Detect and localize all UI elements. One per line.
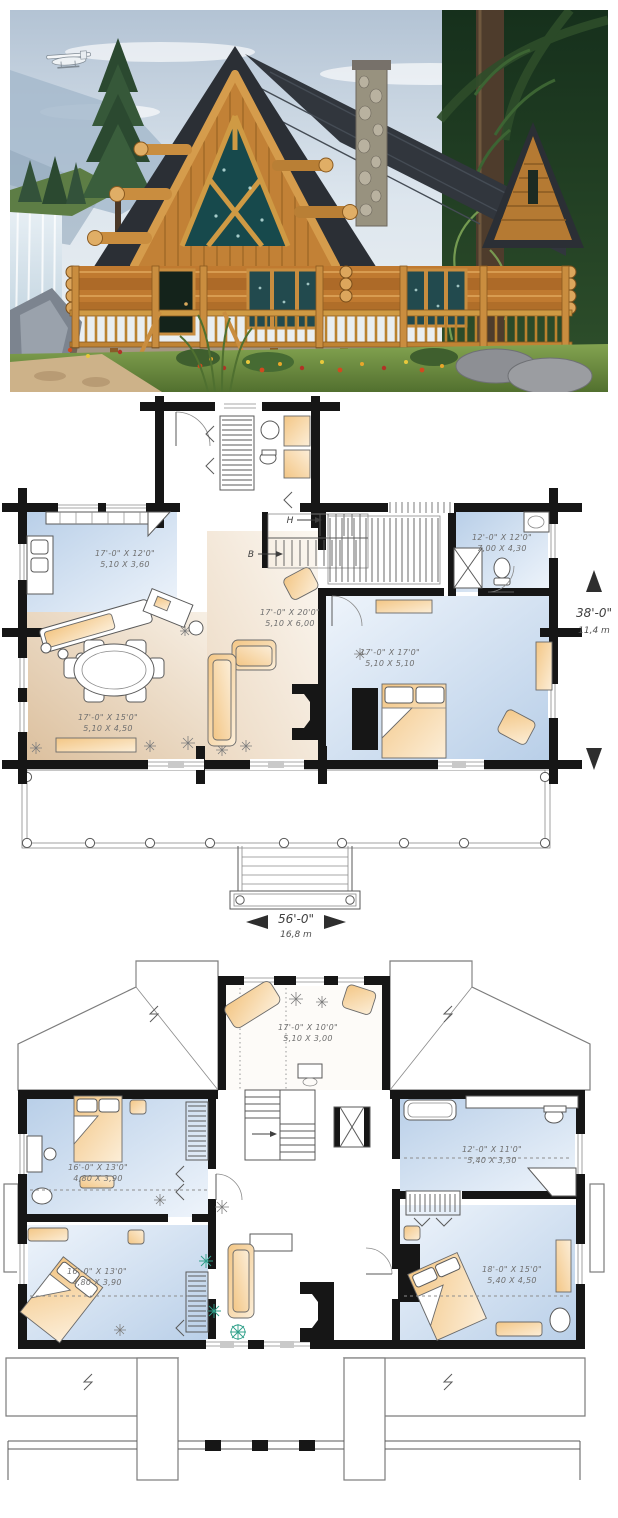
lower-roof-deck [6,1358,585,1480]
deck-pillar-left [137,1358,178,1480]
stone-chimney [352,60,391,226]
sitting-label-imperial: 17'-0" X 10'0" [278,1023,338,1032]
bath-label-imperial: 12'-0" X 12'0" [472,533,532,542]
entry-mudroom [176,412,310,508]
hall-table [250,1234,292,1251]
sideboard [56,738,136,752]
right-dormer [590,1184,604,1272]
depth-metric: 11,4 m [578,626,610,636]
width-imperial: 56'-0" [278,912,314,926]
deck-pillar-right [344,1358,385,1480]
dresser-r [556,1240,571,1292]
sitting-label-metric: 5,10 X 3,00 [283,1034,333,1043]
bedroom-label-metric: 5,10 X 5,10 [365,659,415,668]
dining-label-imperial: 17'-0" X 15'0" [78,713,138,722]
bedroom-r-label-metric: 5,40 X 4,50 [487,1276,537,1285]
front-door [158,270,194,334]
living-label-metric: 5,10 X 6,00 [265,619,315,628]
bedroom-label-imperial: 17'-0" X 17'0" [360,648,420,657]
arrow-down-icon [586,748,602,770]
stair-up-label: H [287,516,294,526]
bedroom-lu-label-metric: 4,80 X 3,90 [73,1174,123,1183]
bedroom-lu-label-imperial: 16'-0" X 13'0" [68,1163,128,1172]
bath-sink [524,512,549,532]
kitchen-label-metric: 5,10 X 3,60 [100,560,150,569]
first-floor-plan: H B [0,396,618,942]
width-dimension: 56'-0" 16,8 m [246,912,346,940]
bath2-label-metric: 5,40 X 3,30 [467,1156,517,1165]
arrow-left-icon [246,915,268,929]
arrow-right-icon [324,915,346,929]
dresser [376,600,432,613]
sitting-table [298,1064,322,1078]
nightstand-lu [130,1100,146,1114]
desk-lu [27,1136,42,1172]
second-floor-svg: 17'-0" X 10'0" 5,10 X 3,00 [0,944,618,1504]
dining-label-metric: 5,10 X 4,50 [83,724,133,733]
bedroom-ll-label-metric: 4,80 X 3,90 [72,1278,122,1287]
chair-r [550,1308,570,1332]
bed-lu [74,1096,122,1162]
kitchen-label-imperial: 17'-0" X 12'0" [95,549,155,558]
depth-dimension: 38'-0" 11,4 m [576,570,612,770]
toilet [494,558,510,585]
shelf-ll [28,1228,68,1241]
bedroom-r-label-imperial: 18'-0" X 15'0" [482,1265,542,1274]
wardrobe [352,688,378,750]
first-floor-svg: H B [0,396,618,942]
cabinet-ll [128,1230,144,1244]
porch [22,770,550,909]
stair-down-label: B [248,550,254,560]
bath2-label-imperial: 12'-0" X 11'0" [462,1145,522,1154]
bath-label-metric: 7,00 X 4,30 [477,544,527,553]
depth-imperial: 38'-0" [576,606,612,620]
living-label-imperial: 17'-0" X 20'0" [260,608,320,617]
width-metric: 16,8 m [280,930,312,940]
bench-r [496,1322,542,1336]
bed [382,684,446,758]
cabin-photo-art [10,10,608,392]
plan-sheet: H B [0,0,618,1518]
desk-chair [189,621,203,635]
side-table [536,642,552,690]
nightstand-r [404,1226,420,1240]
cabin-photo [10,10,608,392]
porch-steps [230,846,360,909]
stairs-2 [245,1090,315,1160]
sink [31,540,48,554]
wash-basin [261,421,279,439]
laundry-unit [284,416,310,446]
fireplace-2 [300,1282,334,1342]
second-floor-plan: 17'-0" X 10'0" 5,10 X 3,00 [0,944,618,1504]
left-dormer [4,1184,18,1272]
closet-rod [330,518,438,582]
bedroom-ll-label-imperial: 16'-0" X 13'0" [67,1267,127,1276]
upper-hall [199,1107,392,1342]
arrow-up-icon [586,570,602,592]
